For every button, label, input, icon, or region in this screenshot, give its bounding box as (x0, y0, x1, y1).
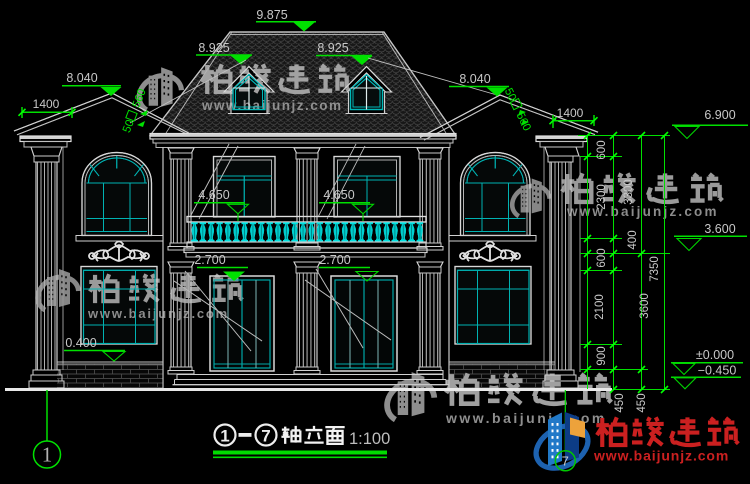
svg-text:2300: 2300 (596, 184, 608, 210)
svg-text:1: 1 (220, 427, 229, 446)
svg-text:www.baijunjz.com: www.baijunjz.com (87, 306, 229, 321)
svg-text:8.925: 8.925 (198, 41, 229, 55)
svg-text:www.baijunjz.com: www.baijunjz.com (201, 98, 343, 113)
svg-text:9.875: 9.875 (256, 8, 287, 22)
svg-text:600: 600 (596, 248, 608, 267)
svg-text:3600: 3600 (639, 293, 651, 319)
svg-text:3300: 3300 (623, 179, 635, 205)
svg-text:4.650: 4.650 (323, 188, 354, 202)
svg-text:1: 1 (42, 443, 53, 467)
svg-text:2.700: 2.700 (194, 253, 225, 267)
svg-text:3.600: 3.600 (704, 222, 735, 236)
svg-text:www.baijunjz.com: www.baijunjz.com (593, 448, 729, 464)
svg-text:1400: 1400 (557, 106, 584, 120)
svg-text:1400: 1400 (33, 97, 60, 111)
svg-text:450: 450 (614, 393, 626, 412)
svg-text:7: 7 (562, 454, 569, 469)
svg-text:2100: 2100 (594, 294, 606, 320)
svg-text:8.040: 8.040 (459, 72, 490, 86)
svg-text:−0.450: −0.450 (698, 364, 737, 378)
svg-text:6.900: 6.900 (704, 108, 735, 122)
svg-text:0.400: 0.400 (65, 336, 96, 350)
svg-text:900: 900 (596, 346, 608, 365)
svg-text:2.700: 2.700 (319, 253, 350, 267)
svg-text:4.650: 4.650 (198, 188, 229, 202)
svg-text:7350: 7350 (649, 256, 661, 282)
svg-text:1:100: 1:100 (349, 430, 390, 448)
svg-text:400: 400 (627, 230, 639, 249)
svg-text:7: 7 (261, 427, 270, 446)
svg-text:600: 600 (596, 140, 608, 159)
svg-text:8.925: 8.925 (317, 41, 348, 55)
svg-text:±0.000: ±0.000 (696, 348, 734, 362)
svg-text:www.baijunjz.com: www.baijunjz.com (566, 204, 719, 219)
svg-text:8.040: 8.040 (66, 71, 97, 85)
svg-text:450: 450 (636, 393, 648, 412)
